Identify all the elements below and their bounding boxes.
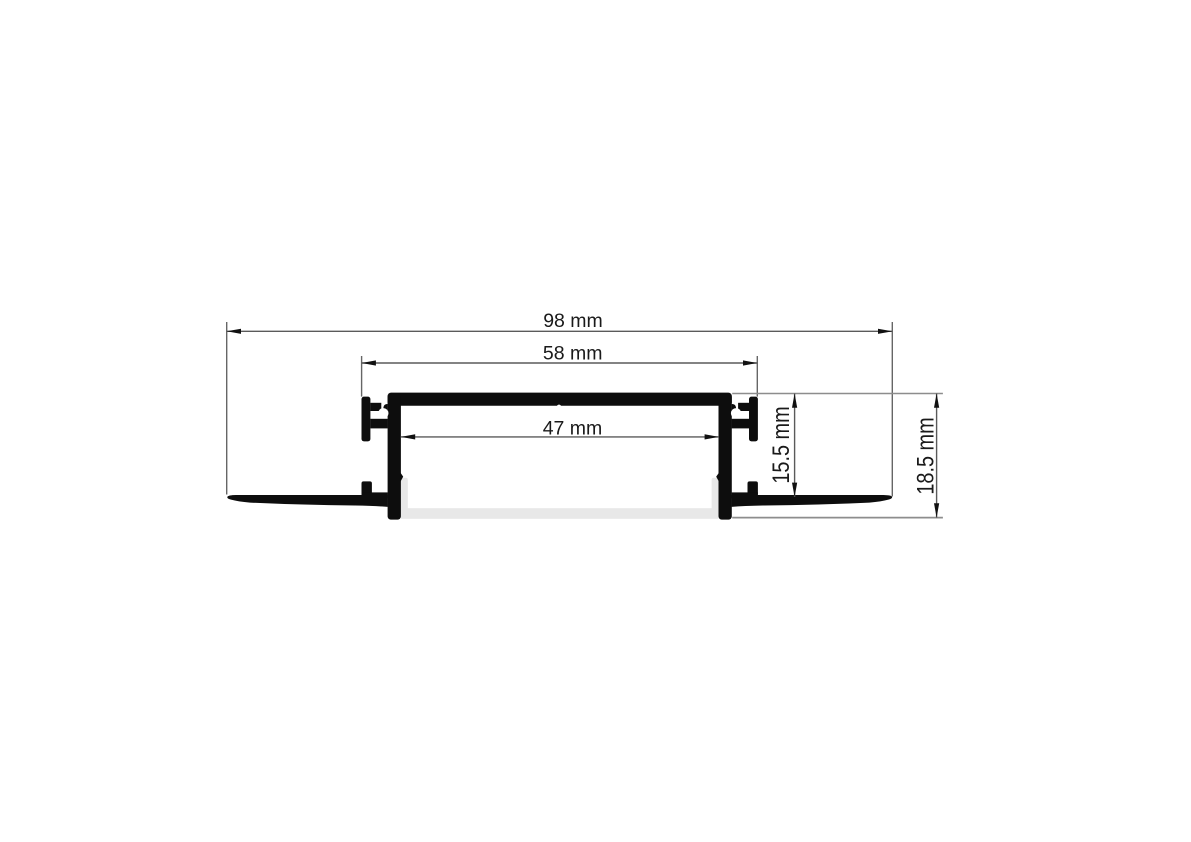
svg-text:15.5 mm: 15.5 mm [767,406,794,483]
svg-text:18.5 mm: 18.5 mm [911,417,938,494]
svg-text:47 mm: 47 mm [543,417,603,439]
svg-text:58 mm: 58 mm [543,342,603,364]
svg-text:98 mm: 98 mm [543,310,603,332]
